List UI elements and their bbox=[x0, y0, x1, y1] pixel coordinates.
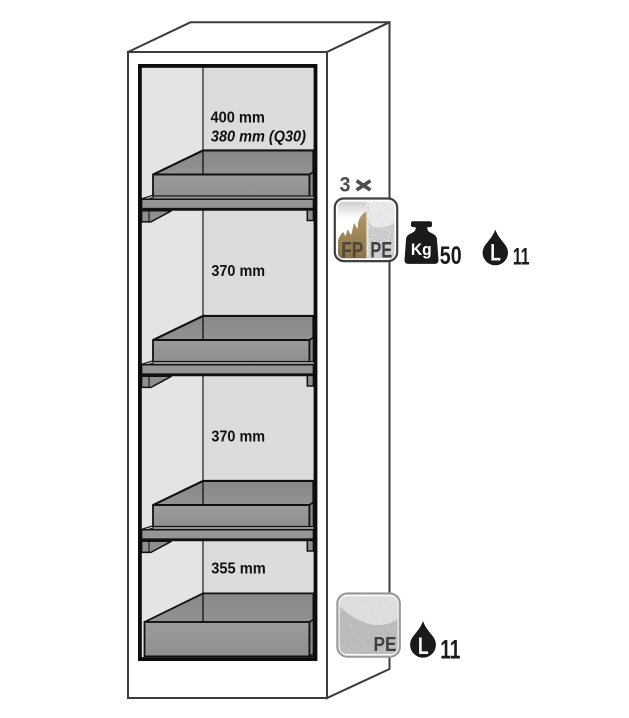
svg-text:FP: FP bbox=[341, 238, 363, 263]
svg-text:370 mm: 370 mm bbox=[211, 429, 265, 446]
svg-text:PE: PE bbox=[370, 238, 392, 263]
svg-text:355 mm: 355 mm bbox=[211, 560, 266, 577]
svg-text:11: 11 bbox=[440, 635, 460, 665]
svg-text:370 mm: 370 mm bbox=[211, 263, 265, 280]
svg-text:Kg: Kg bbox=[411, 241, 432, 259]
svg-text:380 mm (Q30): 380 mm (Q30) bbox=[211, 129, 306, 146]
svg-text:PE: PE bbox=[374, 633, 397, 656]
svg-text:50: 50 bbox=[440, 242, 462, 270]
svg-text:11: 11 bbox=[513, 243, 530, 270]
svg-text:3: 3 bbox=[340, 173, 351, 196]
svg-text:400 mm: 400 mm bbox=[211, 109, 265, 126]
svg-text:L: L bbox=[418, 633, 429, 660]
svg-text:L: L bbox=[490, 239, 501, 266]
